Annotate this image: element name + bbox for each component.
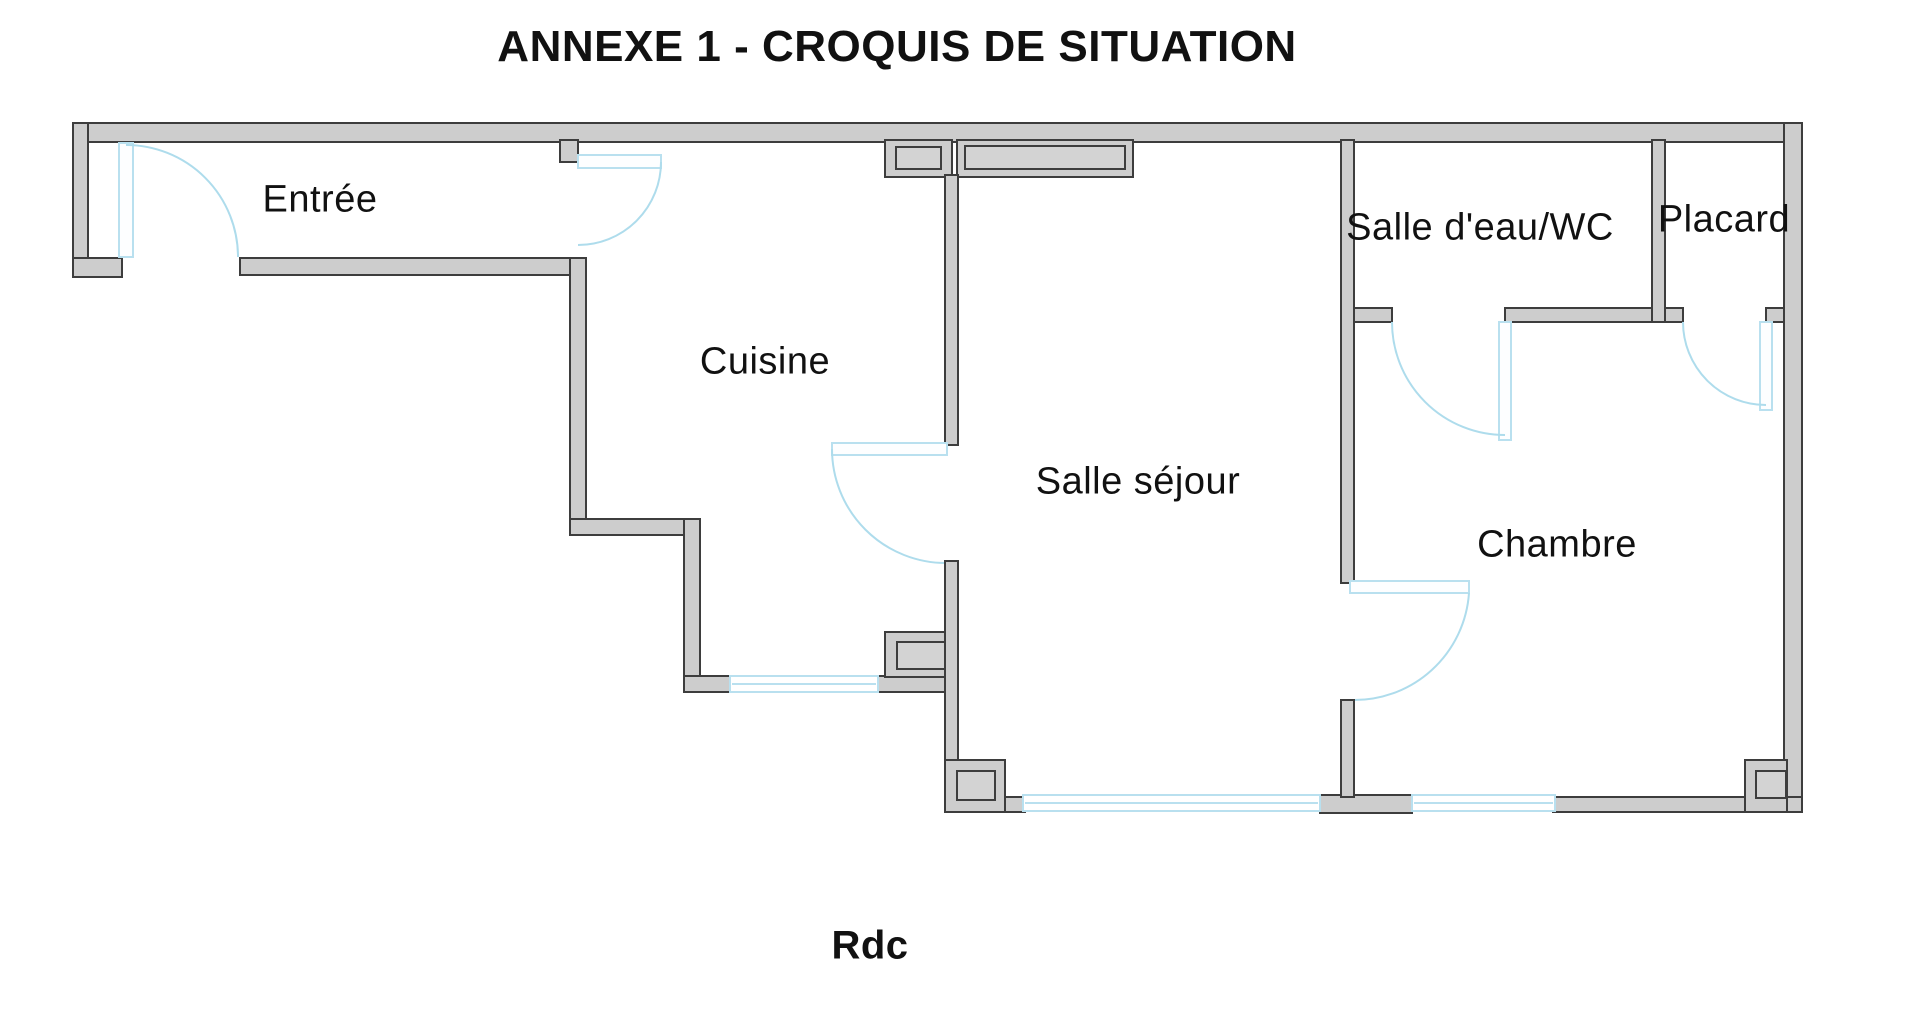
wall-placard-bottom-left-stub [1665,308,1683,322]
exterior-wall-left-bottom-stub [73,258,122,277]
door-swing-entrance [126,145,238,257]
pier-sejour-corner-inner [957,771,995,800]
door-swing-sejour [832,449,946,563]
room-label-placard: Placard [1658,199,1790,242]
wall-cuisine-bottom-left [684,676,730,692]
wall-cuisine-bottom-right [878,676,947,692]
wall-cuisine-left-upper [570,258,586,535]
page-title: ANNEXE 1 - CROQUIS DE SITUATION [497,22,1296,72]
wall-cuisine-step [570,519,700,535]
door-swing-placard [1683,322,1766,405]
duct-top-small-inner [896,147,941,169]
window-sejour [1023,795,1320,811]
floor-plan-page: ANNEXE 1 - CROQUIS DE SITUATION Entrée C… [0,0,1920,1025]
door-leaf-sde [1499,322,1511,440]
door-swing-chambre [1351,593,1469,700]
wall-placard-bottom-right-stub [1766,308,1784,322]
exterior-wall-left [73,123,88,277]
wall-entree-bottom [240,258,586,275]
window-cuisine [730,676,878,692]
wall-stub-cuisine-doorway [560,140,578,162]
room-label-chambre: Chambre [1477,524,1637,567]
exterior-wall-bottom-pier [1320,795,1412,813]
room-label-salle-deau-wc: Salle d'eau/WC [1346,207,1614,250]
door-swing-cuisine [578,162,661,245]
door-leaf-cuisine [578,155,661,168]
wall-sejour-left-upper [945,175,958,445]
door-swing-sde [1392,322,1505,435]
window-chambre [1412,795,1555,811]
door-leaf-entrance [119,143,133,257]
door-leaf-chambre [1350,581,1469,593]
door-leaf-placard [1760,322,1772,410]
door-leaf-sejour [832,443,947,455]
room-label-cuisine: Cuisine [700,341,830,384]
pier-chambre-corner-inner [1756,771,1786,798]
wall-cuisine-left-lower [684,519,700,692]
wall-sejour-right-stub [1341,700,1354,797]
room-label-entree: Entrée [263,179,378,222]
duct-top-long-inner [965,146,1125,169]
room-label-salle-sejour: Salle séjour [1036,461,1241,504]
floor-plan-drawing [0,0,1920,1025]
duct-cuisine-bottom-inner [897,642,946,669]
wall-sde-bottom-right [1505,308,1652,322]
floor-label: Rdc [831,924,908,969]
wall-sde-bottom-stub [1354,308,1392,322]
